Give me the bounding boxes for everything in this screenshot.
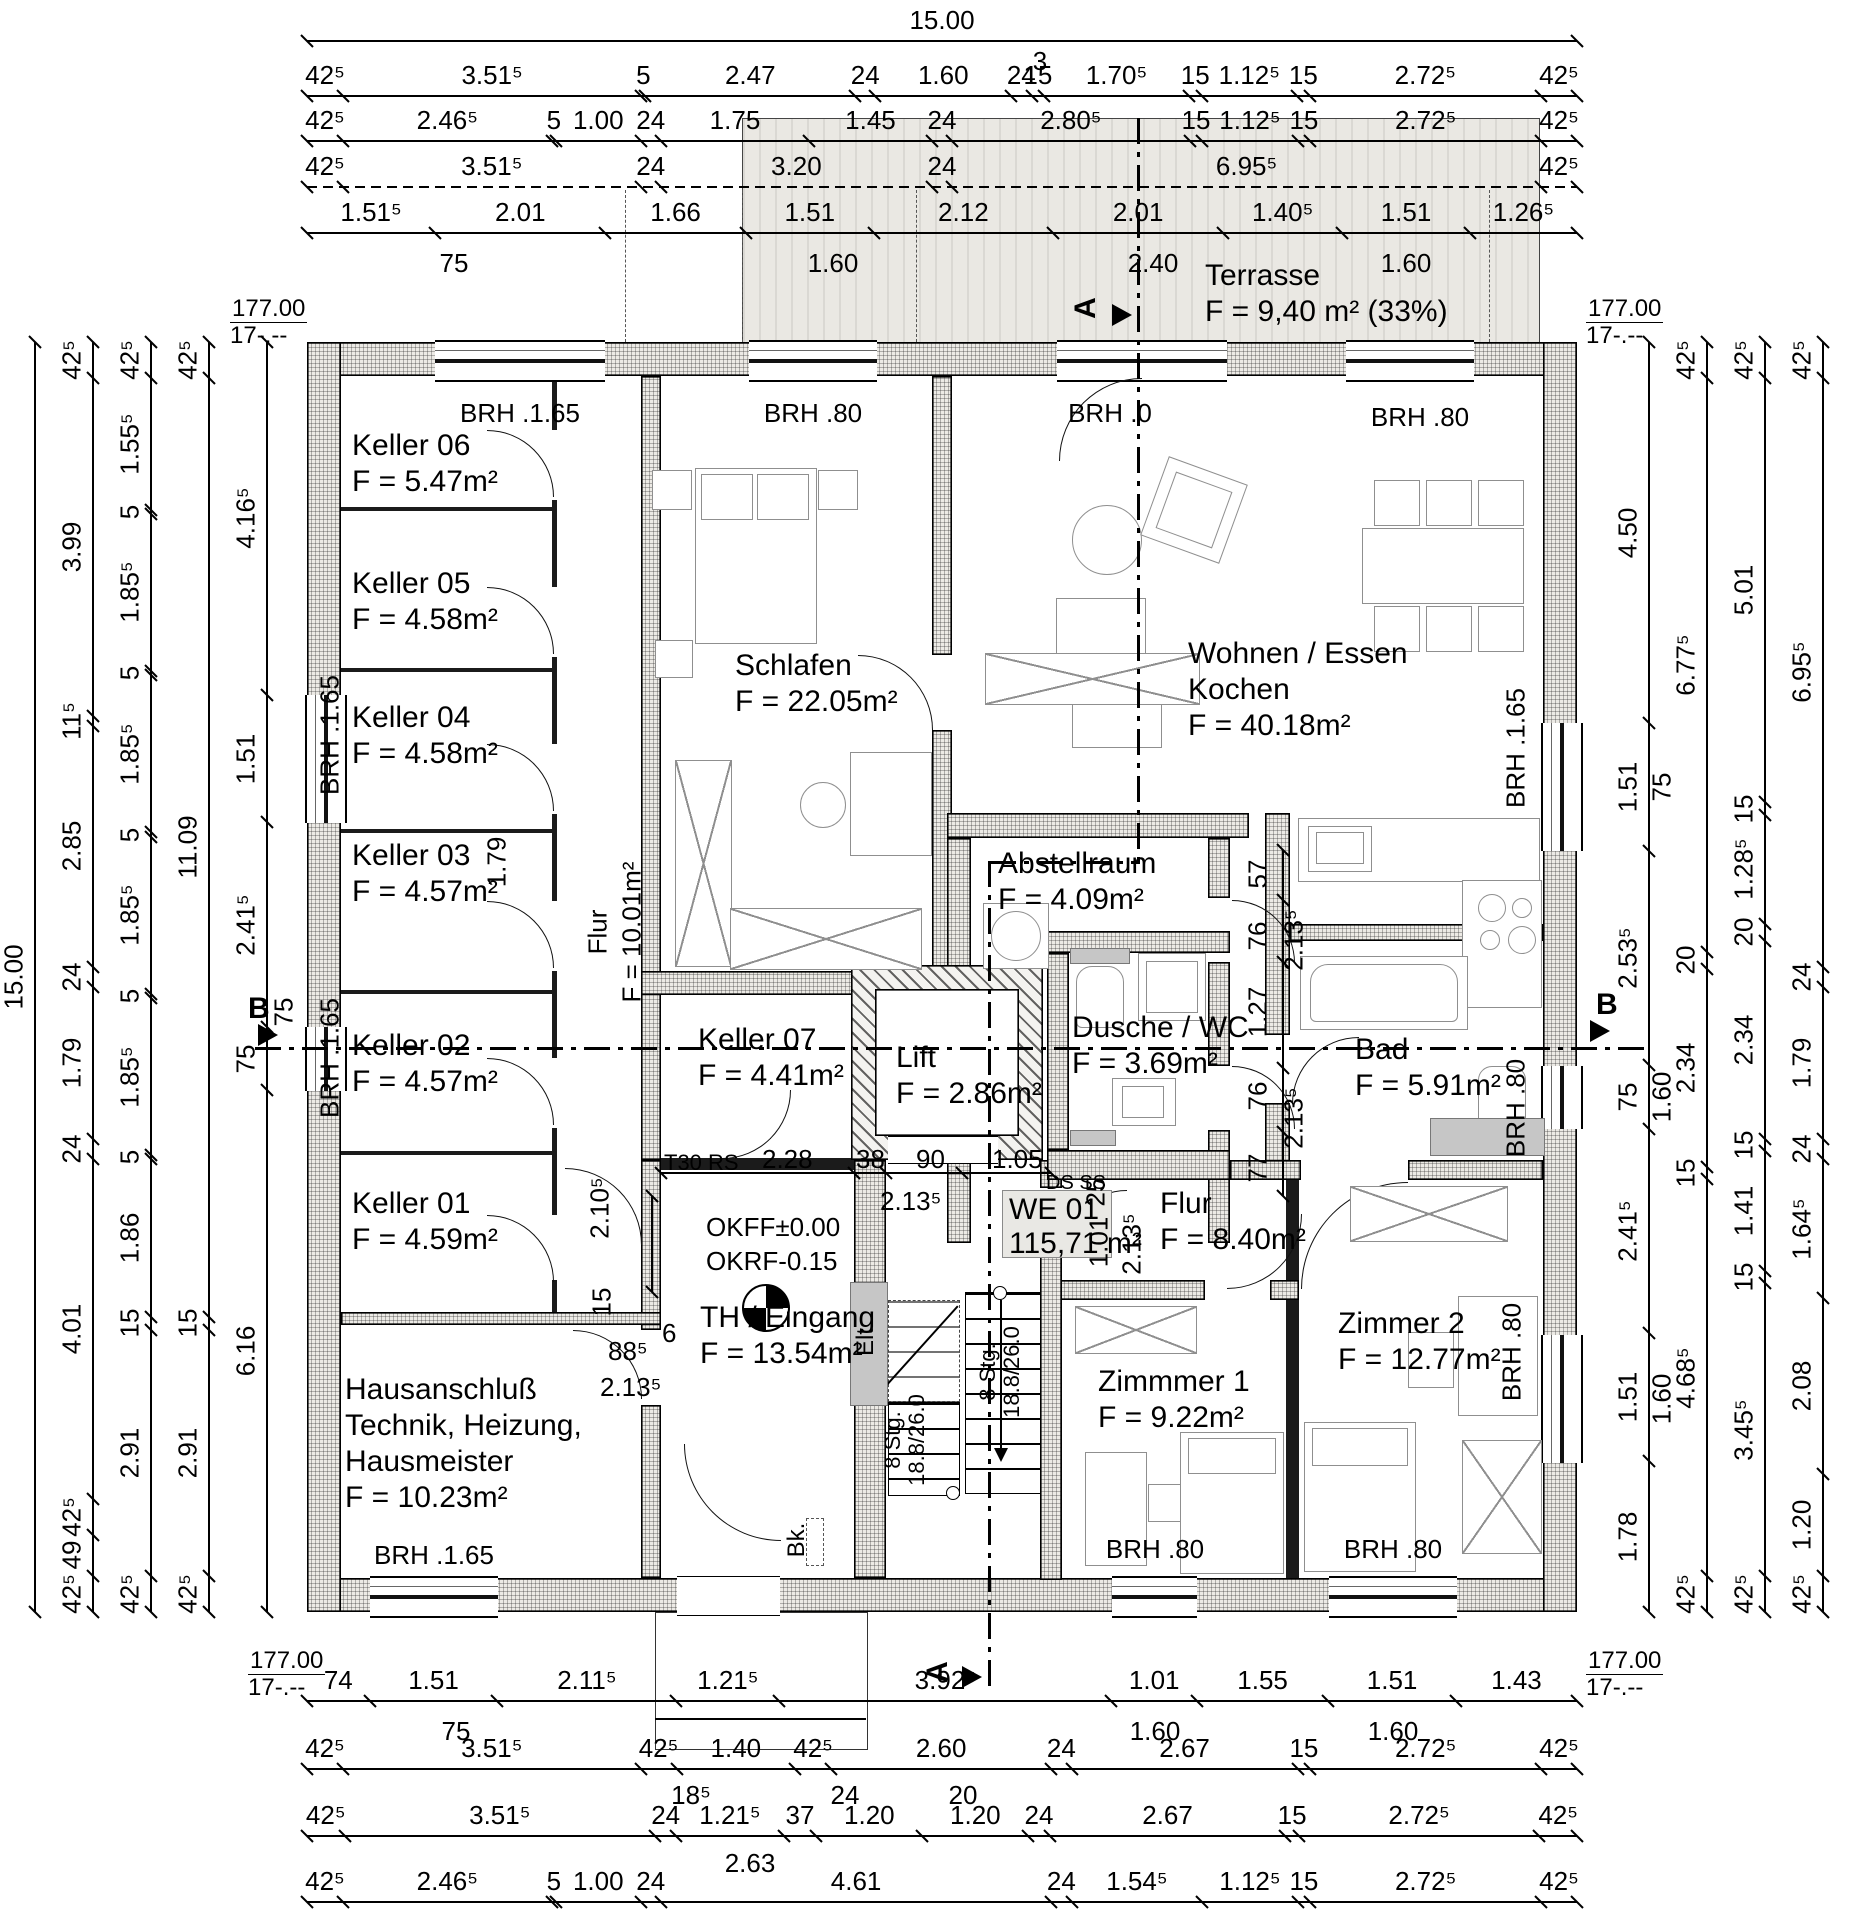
- terrace-door-opening: [1057, 340, 1227, 382]
- dim-label: 4.16⁵: [231, 488, 262, 549]
- dim-annotation: 20: [949, 1780, 978, 1811]
- window-bottom: [370, 1576, 498, 1618]
- window-top: [749, 340, 877, 382]
- dim-chain-top-row5: [307, 232, 1577, 234]
- dim-chain-right-row2: [1706, 342, 1708, 1612]
- dim-chain-right-row4: [1822, 342, 1824, 1612]
- dim-label: 1.75: [710, 105, 761, 136]
- dim-annotation: 1.60: [808, 248, 859, 279]
- dim-label: 20: [1729, 918, 1760, 947]
- section-marker-b: B: [1596, 988, 1618, 1022]
- room-label-line: Keller 05: [352, 566, 772, 602]
- dim-label: 2.72⁵: [1388, 1800, 1449, 1831]
- dim-label: 15: [1729, 794, 1760, 823]
- dim-annotation: 2.40: [1128, 248, 1179, 279]
- dim-label: 1.85⁵: [115, 1046, 146, 1107]
- dim-label: 37: [786, 1800, 815, 1831]
- dim-label: 42⁵: [306, 1800, 346, 1831]
- entrance-porch: [655, 1612, 868, 1750]
- furniture: [1146, 961, 1198, 1013]
- dim-annotation: 1.60: [1130, 1716, 1181, 1747]
- dim-annotation: Bk.: [783, 1523, 811, 1558]
- dim-label: 5: [115, 666, 146, 680]
- dim-label: 15: [173, 1309, 204, 1338]
- dim-annotation: 25: [1081, 1178, 1112, 1207]
- room-label-line: Schlafen: [735, 648, 1155, 684]
- sanitary-counter: [1070, 948, 1130, 964]
- room-label-line: F = 22.05m²: [735, 684, 1155, 720]
- brh-label: BRH .80: [1106, 1534, 1204, 1565]
- window-bottom: [1112, 1576, 1197, 1618]
- room-label-line: Keller 03: [352, 838, 772, 874]
- room-label-bad: BadF = 5.91m²: [1355, 1032, 1775, 1112]
- dim-annotation: 1.60: [1381, 248, 1432, 279]
- dim-annotation: 90: [916, 1144, 945, 1175]
- round-furniture: [800, 782, 846, 828]
- dim-label: 42⁵: [1539, 151, 1579, 182]
- section-triangle: [258, 1024, 278, 1046]
- dim-label: 42⁵: [1787, 1574, 1818, 1614]
- furniture: [1478, 480, 1524, 526]
- dim-label: 15: [1278, 1800, 1307, 1831]
- dim-chain-right-row3: [1764, 342, 1766, 1612]
- dim-label: 1.12⁵: [1219, 105, 1280, 136]
- room-label-line: F = 9.22m²: [1098, 1400, 1518, 1436]
- dim-label: 1.41: [1729, 1186, 1760, 1237]
- room-label-line: Technik, Heizung,: [345, 1408, 765, 1444]
- section-triangle: [1590, 1020, 1610, 1042]
- dim-label: 11⁵: [57, 702, 88, 740]
- dim-annotation: 75: [440, 248, 469, 279]
- dim-annotation: 15: [587, 1288, 618, 1317]
- room-label-line: F = 13.54m²: [700, 1336, 1120, 1372]
- dim-label: 1.64⁵: [1787, 1198, 1818, 1259]
- brh-label: BRH .1.65: [315, 998, 346, 1118]
- furniture: [1426, 480, 1472, 526]
- window-top: [435, 340, 605, 382]
- window-bottom: [1329, 1576, 1457, 1618]
- furniture: [818, 470, 858, 510]
- dim-label: 2.60: [916, 1733, 967, 1764]
- dim-label: 24: [1787, 1134, 1818, 1163]
- dim-label: 15: [115, 1309, 146, 1338]
- dim-label: 1.60: [918, 60, 969, 91]
- dim-label: 1.01: [1129, 1665, 1180, 1696]
- section-triangle: [962, 1666, 982, 1688]
- dim-label: 5: [115, 989, 146, 1003]
- dim-label: 42⁵: [1787, 340, 1818, 380]
- dim-annotation: 2.63: [725, 1848, 776, 1879]
- room-label-line: Wohnen / Essen: [1188, 636, 1608, 672]
- dim-label: 1.43: [1491, 1665, 1542, 1696]
- dim-label: 24: [636, 105, 665, 136]
- dim-label: 2.85: [57, 821, 88, 872]
- section-marker-b: B: [248, 992, 270, 1026]
- room-label-line: F = 4.09m²: [998, 882, 1418, 918]
- room-label-line: Flur: [1160, 1186, 1580, 1222]
- dim-annotation: 6: [662, 1318, 676, 1349]
- room-label-line: Zimmer 2: [1338, 1306, 1758, 1342]
- dim-annotation: 24: [831, 1780, 860, 1811]
- dim-label: 42⁵: [793, 1733, 833, 1764]
- dim-annotation: Flur: [583, 910, 614, 955]
- dim-label: 42⁵: [1539, 1866, 1579, 1897]
- stair-start-circle: [993, 1286, 1007, 1300]
- dim-chain-top-row4: [307, 186, 1577, 188]
- elevation-marker: 177.0017-.--: [248, 1648, 325, 1701]
- window-top: [1346, 340, 1474, 382]
- wall-interior: [932, 376, 952, 655]
- dim-label: 5: [115, 827, 146, 841]
- elevation-lower: 17-.--: [1586, 323, 1663, 349]
- dim-label: 15: [1729, 1263, 1760, 1292]
- room-label-schlafen: SchlafenF = 22.05m²: [735, 648, 1155, 728]
- room-label-line: F = 4.58m²: [352, 602, 772, 638]
- dim-label: 5: [115, 1150, 146, 1164]
- brh-label: BRH .80: [1344, 1534, 1442, 1565]
- elevation-marker: 177.0017-.--: [230, 296, 307, 349]
- dim-annotation: OKFF±0.00: [706, 1212, 840, 1243]
- dim-label: 2.47: [725, 60, 776, 91]
- room-label-abstellraum: AbstellraumF = 4.09m²: [998, 846, 1418, 926]
- dim-annotation: F = 10.01m²: [617, 862, 648, 1003]
- dim-label: 42⁵: [173, 1574, 204, 1614]
- dim-label: 1.28⁵: [1729, 839, 1760, 900]
- dim-chain-bottom-row4: [307, 1901, 1577, 1903]
- dim-annotation: 2.10⁵: [585, 1177, 616, 1238]
- dim-label: 15: [1182, 105, 1211, 136]
- elevation-lower: 17-.--: [1586, 1675, 1663, 1701]
- dim-label: 2.72⁵: [1395, 60, 1456, 91]
- dim-annotation: 2.13⁵: [1279, 909, 1310, 970]
- dim-annotation: 75: [442, 1716, 471, 1747]
- dim-label: 42⁵: [115, 1574, 146, 1614]
- dim-label: 1.51: [231, 733, 262, 784]
- dim-label: 42⁵: [57, 340, 88, 380]
- dim-label: 2.01: [495, 197, 546, 228]
- dim-label: 15.00: [909, 5, 974, 36]
- round-furniture: [1072, 505, 1142, 575]
- dim-annotation: 76: [1243, 1082, 1274, 1111]
- room-label-line: F = 40.18m²: [1188, 708, 1608, 744]
- dim-label: 15: [1289, 105, 1318, 136]
- room-label-hausanschluss: HausanschlußTechnik, Heizung,Hausmeister…: [345, 1372, 765, 1532]
- dim-label: 1.85⁵: [115, 723, 146, 784]
- floor-plan-canvas: 15.0042⁵3.51⁵52.47241.6024151.70⁵151.12⁵…: [0, 0, 1864, 1920]
- dim-label: 15: [1181, 60, 1210, 91]
- brh-label: BRH .0: [1068, 398, 1152, 429]
- furniture: [1362, 528, 1524, 604]
- elevation-upper: 177.00: [1586, 296, 1663, 323]
- furniture: [850, 752, 932, 856]
- dim-label: 42⁵: [57, 1497, 88, 1537]
- dim-label: 2.41⁵: [231, 894, 262, 955]
- dim-label: 2.91: [173, 1428, 204, 1479]
- furniture: [1374, 480, 1420, 526]
- dim-label: 1.51: [408, 1665, 459, 1696]
- dim-annotation: 1.05: [992, 1144, 1043, 1175]
- dim-chain-top-total: [307, 40, 1577, 42]
- brh-label: BRH .1.65: [1501, 688, 1532, 808]
- wall-partition: [552, 1280, 557, 1312]
- dim-label: 42⁵: [305, 151, 345, 182]
- furniture: [1148, 1484, 1184, 1522]
- dim-label: 24: [851, 60, 880, 91]
- dim-label: 3.51⁵: [461, 60, 522, 91]
- dim-label: 1.12⁵: [1219, 60, 1280, 91]
- round-furniture: [1512, 898, 1532, 918]
- dim-label: 1.85⁵: [115, 562, 146, 623]
- round-furniture: [1508, 926, 1536, 954]
- brh-label: BRH .80: [1497, 1303, 1528, 1401]
- dim-label: 42⁵: [1729, 340, 1760, 380]
- dim-annotation: 88⁵: [608, 1336, 648, 1367]
- dim-chain-left-row2: [92, 342, 94, 1612]
- dim-annotation: T30 RS: [664, 1150, 739, 1176]
- dim-annotation: OKRF-0.15: [706, 1246, 838, 1277]
- room-label-line: Kochen: [1188, 672, 1608, 708]
- dim-label: 5: [115, 505, 146, 519]
- dim-annotation: 3: [1033, 46, 1047, 77]
- dim-annotation: 2.13⁵: [880, 1186, 941, 1217]
- room-label-wohnen: Wohnen / EssenKochenF = 40.18m²: [1188, 636, 1608, 756]
- room-label-line: Hausmeister: [345, 1444, 765, 1480]
- dim-label: 6.95⁵: [1216, 151, 1277, 182]
- room-label-line: Bad: [1355, 1032, 1775, 1068]
- brh-label: BRH .1.65: [374, 1540, 494, 1571]
- dim-label: 42⁵: [1729, 1574, 1760, 1614]
- dim-label: 3.51⁵: [469, 1800, 530, 1831]
- dim-label: 24: [928, 151, 957, 182]
- dim-label: 2.80⁵: [1040, 105, 1101, 136]
- dim-label: 4.50: [1613, 507, 1644, 558]
- dim-chain-left-row4: [208, 342, 210, 1612]
- dim-label: 3.45⁵: [1729, 1399, 1760, 1460]
- dim-annotation: 1.60: [1368, 1716, 1419, 1747]
- section-marker-a: A: [1069, 297, 1103, 319]
- dim-chain-top-row3: [307, 140, 1577, 142]
- room-label-line: F = 9,40 m² (33%): [1205, 294, 1625, 330]
- room-label-line: F = 4.58m²: [352, 736, 772, 772]
- dim-label: 2.53⁵: [1613, 927, 1644, 988]
- elevation-upper: 177.00: [1586, 1648, 1663, 1675]
- dim-annotation: 1.60: [1647, 1072, 1678, 1123]
- dim-label: 2.72⁵: [1395, 105, 1456, 136]
- dim-label: 6.16: [231, 1326, 262, 1377]
- dim-chain-left-row5: [266, 342, 268, 1612]
- wall-partition: [341, 668, 557, 672]
- dim-label: 1.51: [1381, 197, 1432, 228]
- section-line-a: [988, 861, 991, 1690]
- dim-label: 42⁵: [305, 105, 345, 136]
- dim-label: 42⁵: [305, 1733, 345, 1764]
- dim-label: 6.95⁵: [1787, 642, 1818, 703]
- elevation-lower: 17-.--: [248, 1675, 325, 1701]
- dim-chain-left-total: [34, 342, 36, 1612]
- dim-annotation: 1.79: [482, 837, 513, 888]
- dim-label: 1.51: [784, 197, 835, 228]
- dim-label: 24: [1047, 1733, 1076, 1764]
- dim-chain-top-row2: [307, 95, 1577, 97]
- dim-annotation: 18.8/26.0: [904, 1394, 930, 1486]
- dim-label: 1.66: [650, 197, 701, 228]
- dim-label: 42⁵: [1539, 60, 1579, 91]
- dim-label: 1.00: [573, 1866, 624, 1897]
- section-triangle: [1112, 304, 1132, 326]
- dim-label: 5: [547, 1866, 561, 1897]
- dim-label: 2.46⁵: [417, 1866, 478, 1897]
- section-line-a: [1137, 118, 1140, 862]
- dim-label: 24: [1024, 1800, 1053, 1831]
- brh-label: BRH .80: [1501, 1059, 1532, 1157]
- dim-annotation: 18.8/26.0: [999, 1326, 1025, 1418]
- porch-step-line: [655, 1718, 866, 1720]
- dim-label: 1.00: [573, 105, 624, 136]
- dim-label: 11.09: [173, 816, 204, 879]
- dim-label: 1.26⁵: [1493, 197, 1554, 228]
- dim-label: 3.99: [57, 522, 88, 573]
- room-label-line: Abstellraum: [998, 846, 1418, 882]
- dim-label: 1.79: [57, 1038, 88, 1089]
- room-label-line: Keller 06: [352, 428, 772, 464]
- wall-interior: [1270, 1280, 1299, 1300]
- dim-chain-left-row3: [150, 342, 152, 1612]
- dim-label: 42⁵: [639, 1733, 679, 1764]
- dim-annotation: 57: [1243, 860, 1274, 889]
- dim-label: 1.45: [845, 105, 896, 136]
- sanitary-counter: [1070, 1130, 1116, 1146]
- dim-label: 3.20: [771, 151, 822, 182]
- wall-interior: [1040, 1280, 1205, 1300]
- wall-partition: [341, 990, 557, 994]
- dim-label: 1.86: [115, 1213, 146, 1264]
- room-label-zimmer2: Zimmer 2F = 12.77m²: [1338, 1306, 1758, 1386]
- dim-annotation: 77: [1243, 1154, 1274, 1183]
- dim-label: 42⁵: [115, 340, 146, 380]
- dim-label: 42⁵: [1671, 1574, 1702, 1614]
- dim-label: 24: [57, 963, 88, 992]
- room-label-line: TH / Eingang: [700, 1300, 1120, 1336]
- dim-label: 42⁵: [1538, 1800, 1578, 1831]
- dim-annotation: 1.60: [1647, 1374, 1678, 1425]
- brh-label: BRH .1.65: [460, 398, 580, 429]
- dim-annotation: 8 Stg.: [880, 1411, 906, 1468]
- dim-label: 1.85⁵: [115, 884, 146, 945]
- dim-label: 3.51⁵: [461, 151, 522, 182]
- wall-partition: [341, 829, 557, 833]
- terrace-dashed-guide: [625, 190, 626, 342]
- elevation-upper: 177.00: [230, 296, 307, 323]
- dim-label: 2.08: [1787, 1361, 1818, 1412]
- dim-label: 5: [547, 105, 561, 136]
- dim-label: 1.55⁵: [115, 413, 146, 474]
- terrace-dashed-guide: [916, 190, 917, 342]
- dim-label: 42⁵: [305, 60, 345, 91]
- dim-label: 1.40⁵: [1252, 197, 1313, 228]
- dim-label: 1.79: [1787, 1038, 1818, 1089]
- dim-label: 24: [636, 1866, 665, 1897]
- dim-label: 42⁵: [1539, 105, 1579, 136]
- room-label-keller05: Keller 05F = 4.58m²: [352, 566, 772, 646]
- terrace-dashed-guide: [742, 190, 743, 342]
- dim-annotation: 2.13⁵: [1279, 1087, 1310, 1148]
- room-label-line: F = 4.57m²: [352, 874, 772, 910]
- dim-annotation: Elt: [852, 1328, 880, 1356]
- room-label-line: F = 12.77m²: [1338, 1342, 1758, 1378]
- dim-annotation: 75: [1647, 773, 1678, 802]
- dim-label: 42⁵: [305, 1866, 345, 1897]
- stair-arrow-head: [994, 1448, 1008, 1462]
- dim-label: 75: [231, 1044, 262, 1073]
- dim-label: 24: [928, 105, 957, 136]
- dim-label: 15: [1289, 60, 1318, 91]
- room-label-keller04: Keller 04F = 4.58m²: [352, 700, 772, 780]
- dim-annotation: 2.13⁵: [600, 1372, 661, 1403]
- dim-label: 1.20: [1787, 1500, 1818, 1551]
- dim-label: 1.70⁵: [1086, 60, 1147, 91]
- dim-label: 4.01: [57, 1303, 88, 1354]
- dim-label: 42⁵: [173, 340, 204, 380]
- dim-label: 2.11⁵: [557, 1665, 616, 1696]
- dim-annotation: 75: [269, 998, 300, 1027]
- wardrobe: [1462, 1440, 1542, 1554]
- wall-interior: [947, 813, 1249, 838]
- dim-label: 1.21⁵: [697, 1665, 758, 1696]
- room-label-keller03: Keller 03F = 4.57m²: [352, 838, 772, 918]
- dim-annotation: 18⁵: [671, 1780, 711, 1811]
- dim-label: 15: [1289, 1733, 1318, 1764]
- round-furniture: [1478, 894, 1506, 922]
- room-label-line: F = 8.40m²: [1160, 1222, 1580, 1258]
- stair-start-circle: [946, 1486, 960, 1500]
- room-label-th-eingang: TH / EingangF = 13.54m²: [700, 1300, 1120, 1380]
- dim-label: 1.12⁵: [1219, 1866, 1280, 1897]
- dim-label: 24: [636, 151, 665, 182]
- dim-label: 15.00: [0, 944, 30, 1009]
- room-label-flur-we01: FlurF = 8.40m²: [1160, 1186, 1580, 1266]
- brh-label: BRH .1.65: [315, 675, 346, 795]
- dim-label: 6.77⁵: [1671, 634, 1702, 695]
- dim-label: 42⁵: [1539, 1733, 1579, 1764]
- elevation-upper: 177.00: [248, 1648, 325, 1675]
- dim-label: 1.51: [1367, 1665, 1418, 1696]
- dim-label: 24: [1047, 1866, 1076, 1897]
- dim-label: 2.72⁵: [1395, 1866, 1456, 1897]
- elevation-lower: 17-.--: [230, 323, 307, 349]
- dim-label: 2.46⁵: [417, 105, 478, 136]
- dim-label: 1.40: [711, 1733, 762, 1764]
- dim-label: 4.61: [831, 1866, 882, 1897]
- dim-label: 42⁵: [1671, 340, 1702, 380]
- brh-label: BRH .80: [1371, 402, 1469, 433]
- dim-label: 1.78: [1613, 1511, 1644, 1562]
- dim-label: 1.51⁵: [340, 197, 401, 228]
- section-marker-a: A: [921, 1661, 955, 1683]
- dim-label: 24: [1787, 963, 1818, 992]
- dim-label: 5: [636, 60, 650, 91]
- room-label-line: F = 5.91m²: [1355, 1068, 1775, 1104]
- dim-chain-bottom-row2: [307, 1768, 1577, 1770]
- dim-label: 2.41⁵: [1613, 1201, 1644, 1262]
- dim-annotation: 1.27: [1243, 987, 1274, 1038]
- dim-label: 2.91: [115, 1427, 146, 1478]
- dim-label: 15: [1729, 1131, 1760, 1160]
- dim-label: 5.01: [1729, 565, 1760, 616]
- dim-label: 20: [1671, 946, 1702, 975]
- wall-interior: [1408, 1160, 1543, 1180]
- entrance-door-opening: [677, 1576, 780, 1616]
- room-label-line: Keller 04: [352, 700, 772, 736]
